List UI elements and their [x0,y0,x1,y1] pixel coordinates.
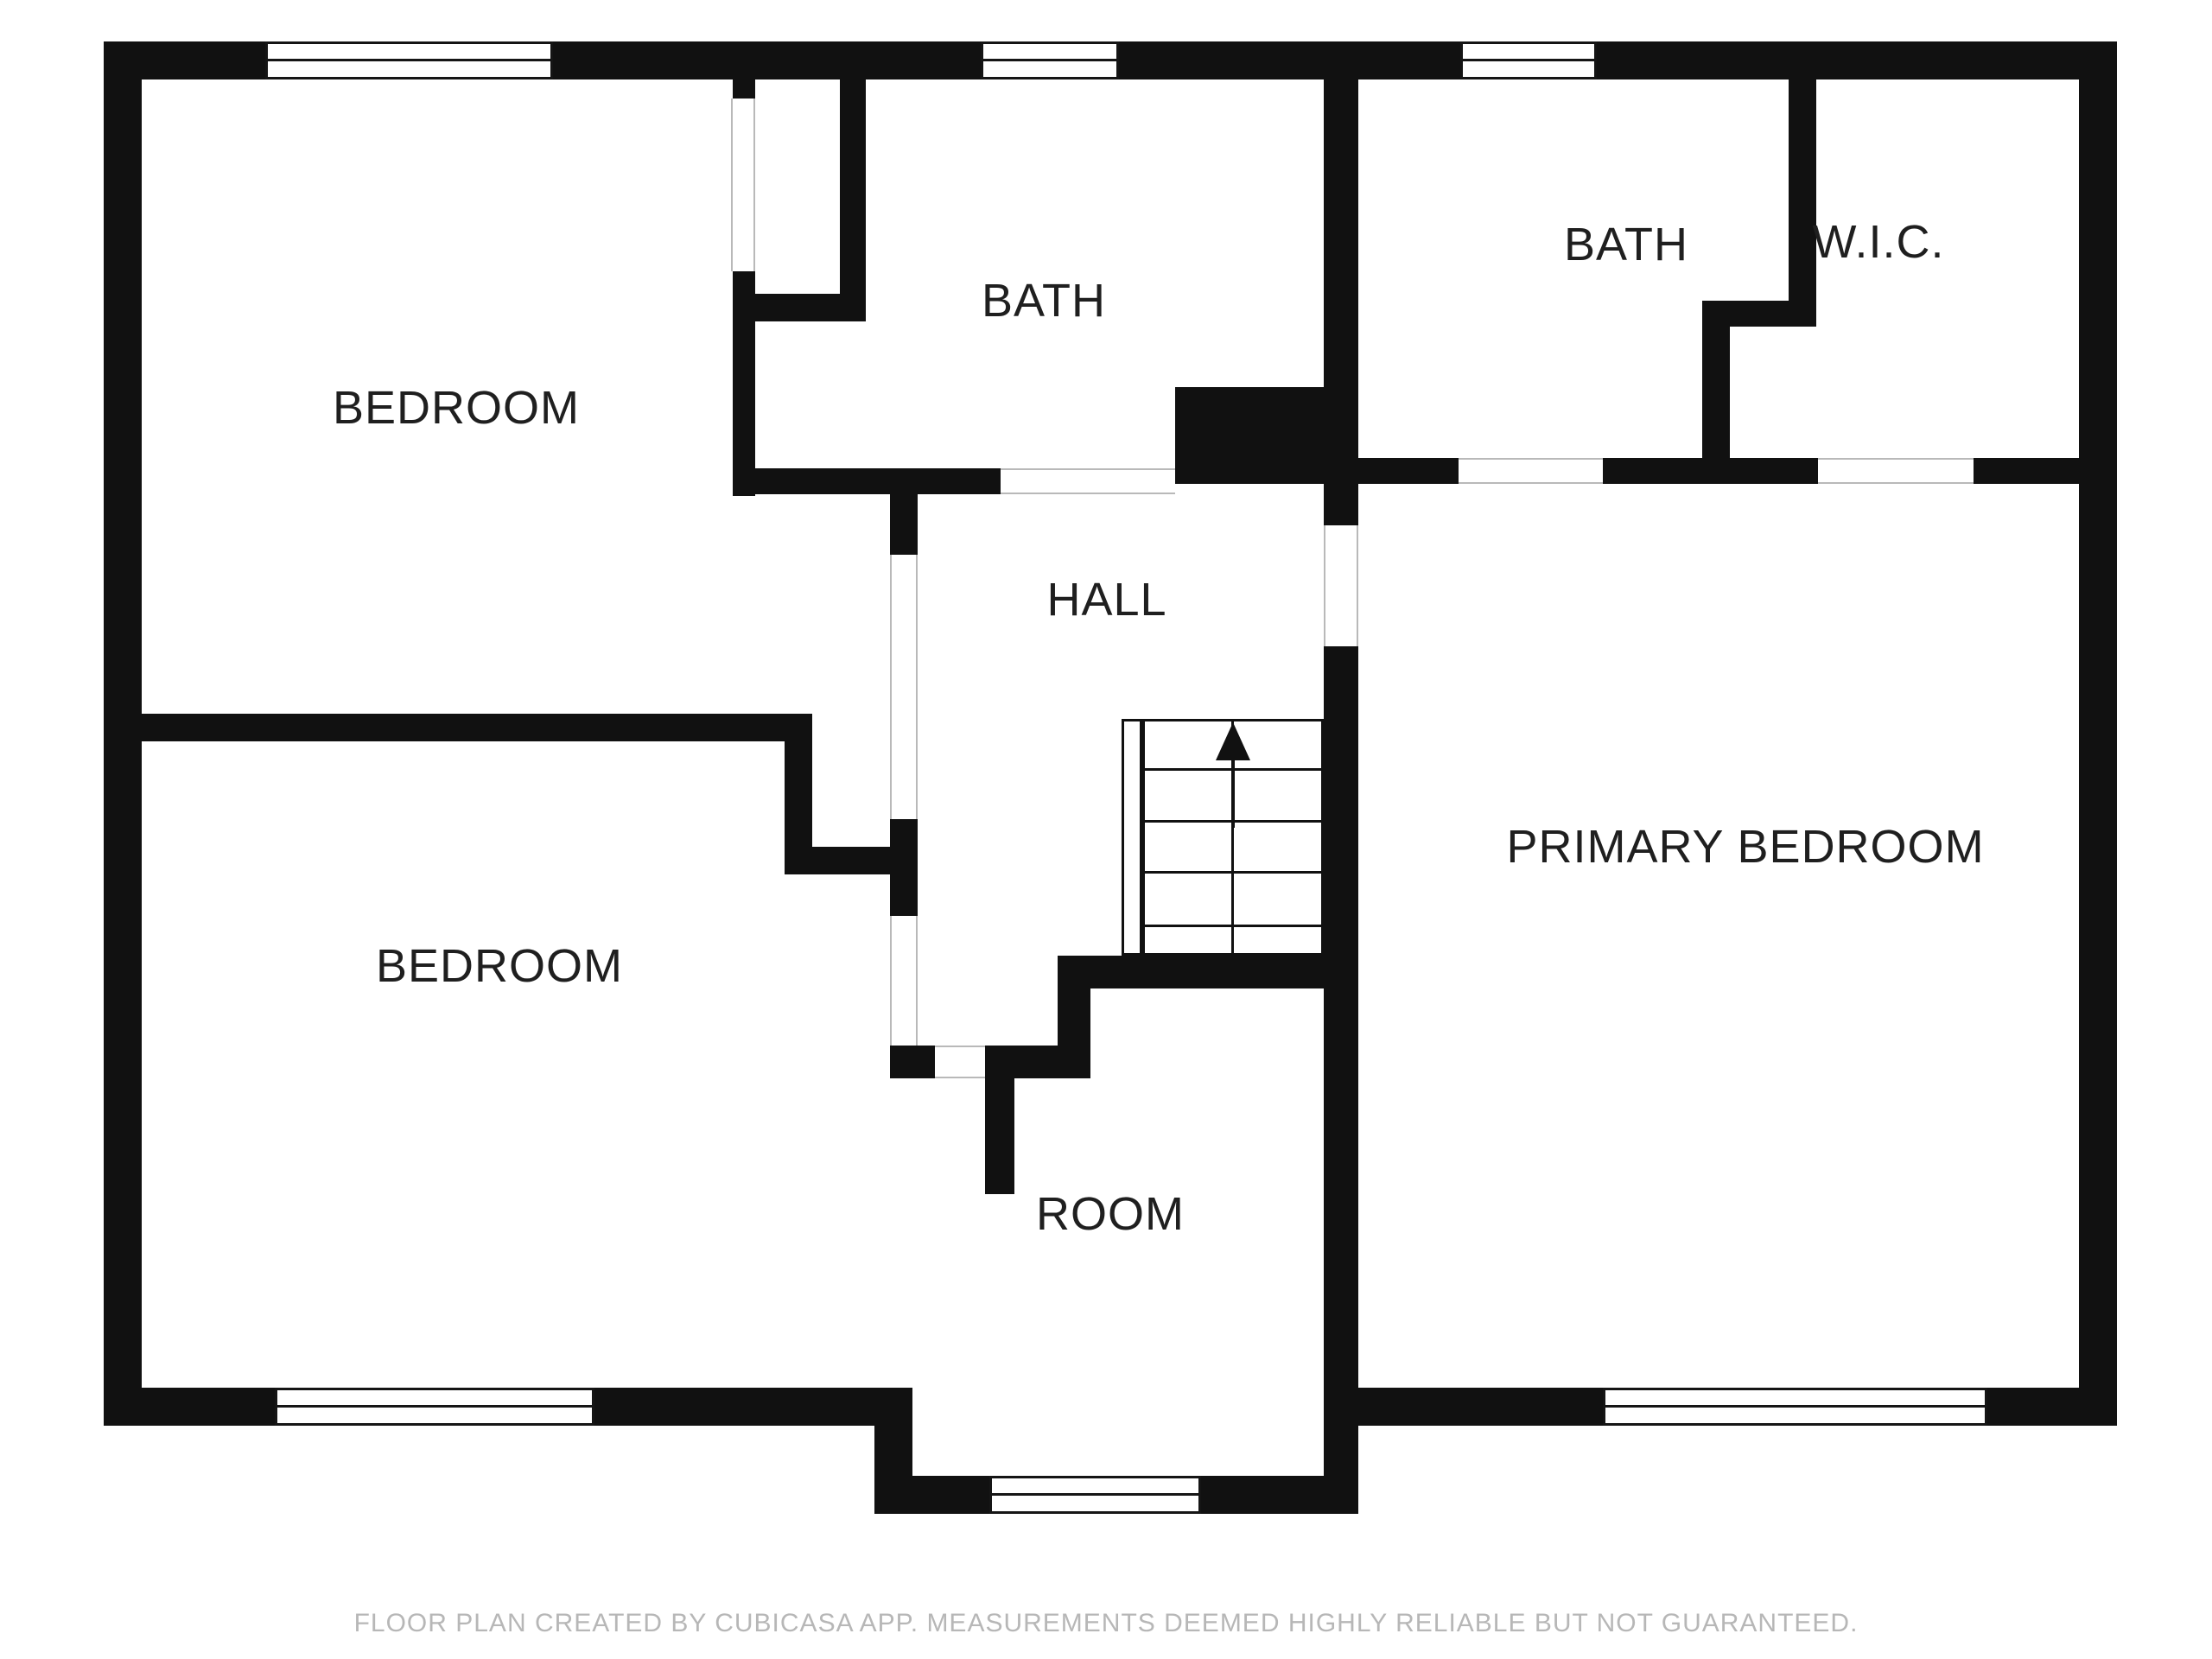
door-opening-bath1 [1001,468,1175,494]
stairs-tread-3 [1142,871,1324,874]
stairs-tread-4 [1142,925,1324,927]
stairs-arrow-stem [1231,759,1235,828]
wall-room-top-left [890,1046,935,1078]
door-opening-room [935,1046,985,1078]
room-label-room: ROOM [1036,1187,1185,1241]
door-opening-bath2 [1459,458,1603,484]
wall-hall-primary-stub [1324,484,1358,525]
window-bedroom-top [265,41,553,79]
room-label-primary-bedroom: PRIMARY BEDROOM [1506,820,1984,874]
window-bath2-top [1460,41,1597,79]
door-opening-closet [731,99,755,271]
wall-exterior-right [2079,41,2117,1426]
window-primary-bottom [1603,1388,1987,1426]
wall-bath1-bottom [733,468,1001,494]
room-label-bath-top-middle: BATH [982,274,1106,327]
stairs-railing [1122,719,1142,956]
wall-room-stub [985,1078,1014,1194]
room-label-bath-top-right: BATH [1564,218,1688,271]
wall-wic-divider-lower [1702,327,1730,484]
wall-wic-divider-jog [1702,301,1816,327]
wall-exterior-left [104,41,142,1426]
stairs-up-arrow [1216,722,1250,760]
window-bath1-top [981,41,1119,79]
room-label-hall: HALL [1046,573,1166,626]
wall-bath1-left [840,79,866,321]
room-label-bedroom-bottom-left: BEDROOM [376,939,623,993]
wall-hall-bottom [1058,956,1358,988]
floor-plan: BEDROOM BATH BATH W.I.C. HALL BEDROOM PR… [0,0,2212,1659]
door-opening-primary-bedroom [1324,525,1358,646]
wall-bedrooms-divider [142,714,812,741]
footer-disclaimer: FLOOR PLAN CREATED BY CUBICASA APP. MEAS… [0,1609,2212,1638]
door-opening-wic [1818,458,1974,484]
wall-hall-left-stub [890,494,918,555]
wall-between-baths [1324,79,1358,387]
room-label-bedroom-top-left: BEDROOM [333,381,580,435]
wall-primary-top-1 [1358,458,1459,484]
window-room-bottom [989,1476,1201,1514]
chimney-block [1175,387,1358,484]
window-bedroom2-bottom [275,1388,594,1426]
wall-divider-jog-horizontal [785,847,890,874]
wall-hall-primary [1324,646,1358,1514]
door-opening-bedroom1 [890,555,918,819]
room-label-wic: W.I.C. [1813,215,1945,269]
wall-hall-room-connector [1058,956,1090,1078]
door-opening-bedroom2 [890,916,918,1046]
wall-wic-divider-upper [1789,79,1816,302]
wall-primary-top-3 [1974,458,2079,484]
wall-hall-left-piece [890,819,918,916]
